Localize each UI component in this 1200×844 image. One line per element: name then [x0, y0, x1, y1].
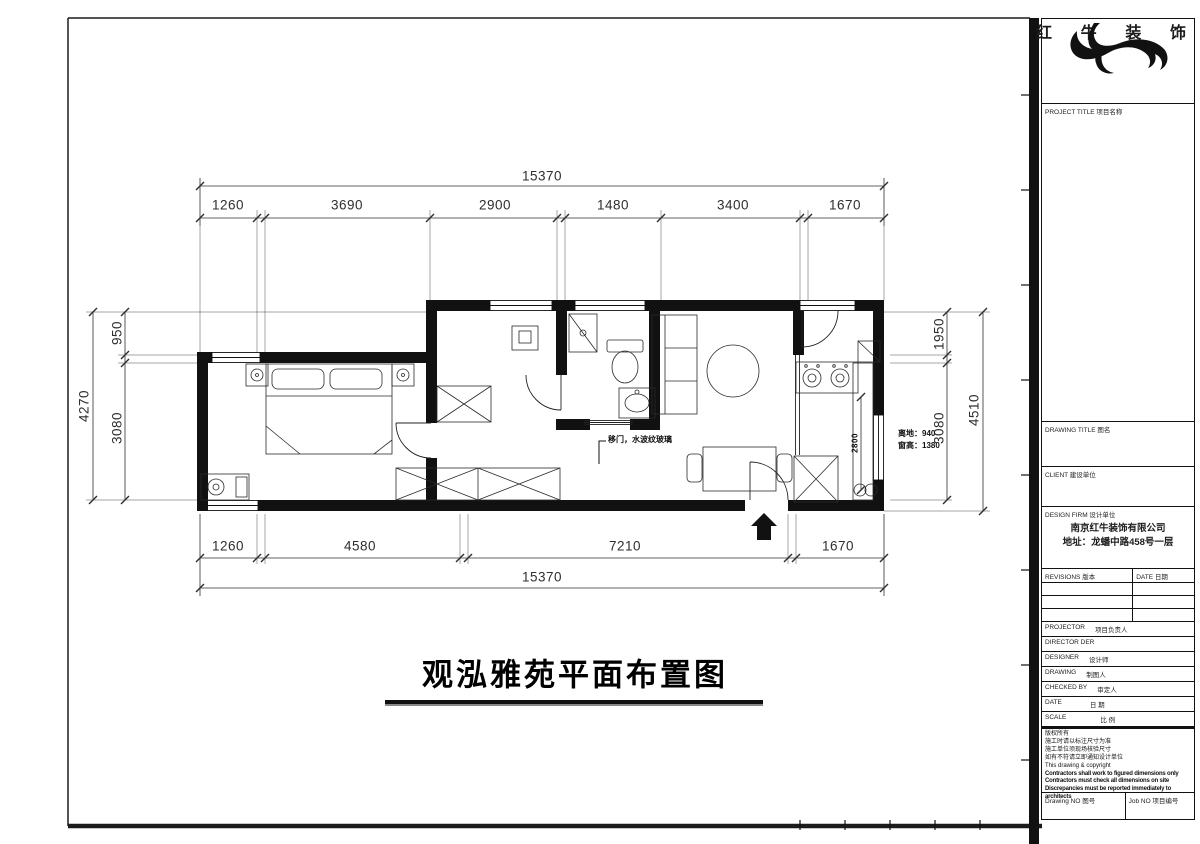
revision-row	[1042, 583, 1194, 596]
dim-bottom-seg-1: 1260	[212, 539, 244, 554]
design-firm-company: 南京红牛装饰有限公司	[1045, 522, 1191, 536]
dimension-lines	[86, 178, 990, 596]
notes-cell: 版权所有 施工时请以标注尺寸为准 施工单位须现场核验尺寸 如有不符请立即通知设计…	[1042, 727, 1194, 793]
washing-machine	[201, 474, 249, 500]
entry-arrow-symbol	[751, 513, 777, 540]
note-line: 如有不符请立即通知设计单位	[1045, 755, 1191, 763]
date-row: DATE 日 期	[1042, 697, 1194, 712]
window-kitchen-right	[874, 415, 884, 480]
bathroom-door	[526, 375, 561, 410]
window-closet-top	[490, 301, 552, 311]
date-label-en: DATE	[1045, 699, 1062, 706]
dim-right-top: 1950	[932, 318, 947, 350]
drawing-title-label: DRAWING TITLE 图名	[1045, 427, 1110, 434]
dim-top-seg-2: 3690	[331, 198, 363, 213]
revisions-header: REVISIONS 版本 DATE 日期	[1042, 569, 1194, 583]
dim-left-top: 950	[110, 321, 125, 345]
dim-left-total: 4270	[77, 390, 92, 422]
glass-door-note: 移门，水波纹玻璃	[608, 434, 672, 445]
project-title-cell: PROJECT TITLE 项目名称	[1042, 104, 1194, 422]
nightstand-left	[246, 364, 268, 386]
shower	[569, 314, 597, 352]
project-title-label: PROJECT TITLE 项目名称	[1045, 109, 1122, 116]
bath-sliding-glass-door	[585, 421, 632, 425]
dim-bottom-seg-3: 7210	[609, 539, 641, 554]
dim-top-seg-4: 1480	[597, 198, 629, 213]
entry-door	[750, 462, 788, 500]
drawing-canvas	[0, 0, 1200, 844]
bedroom-door	[396, 423, 431, 458]
drawing-label-en: DRAWING	[1045, 669, 1076, 676]
window-bath-top	[575, 301, 645, 311]
window-kitchen-top	[800, 301, 855, 311]
window-height-note: 离地：940 窗高：1380	[898, 428, 940, 452]
projector-label-en: PROJECTOR	[1045, 624, 1085, 631]
window-height-line1: 离地：940	[898, 428, 940, 440]
floorplan-sheet: { "page": {"background": "#ffffff", "ink…	[0, 0, 1200, 844]
hall-wardrobe	[396, 468, 560, 500]
dim-top-total: 15370	[522, 169, 562, 184]
note-line: Discrepancies must be reported immediate…	[1045, 786, 1191, 803]
balcony-door	[802, 311, 838, 347]
titleblock-divider-bar	[1029, 18, 1039, 844]
revisions-date-label: DATE 日期	[1136, 574, 1168, 581]
design-firm-cell: DESIGN FIRM 设计单位 南京红牛装饰有限公司 地址：龙蟠中路458号一…	[1042, 507, 1194, 569]
stove	[796, 362, 858, 393]
bed	[266, 364, 392, 454]
note-line: 施工时请以标注尺寸为准	[1045, 739, 1191, 747]
title-block: 红 牛 装 饰 PROJECT TITLE 项目名称 DRAWING TITLE…	[1041, 18, 1195, 820]
nightstand-right	[392, 364, 414, 386]
note-line: This drawing & copyright	[1045, 763, 1191, 771]
closet-wardrobe	[437, 386, 491, 422]
window-height-line2: 窗高：1380	[898, 440, 940, 452]
plan-title-underline	[385, 700, 763, 706]
revision-row	[1042, 609, 1194, 622]
dim-top-seg-6: 1670	[829, 198, 861, 213]
projector-row: PROJECTOR 项目负责人	[1042, 622, 1194, 637]
red-bull-logo-icon	[1042, 19, 1192, 81]
design-firm-address: 地址：龙蟠中路458号一层	[1045, 536, 1191, 550]
revision-row	[1042, 596, 1194, 609]
dim-top-seg-1: 1260	[212, 198, 244, 213]
round-table	[707, 345, 759, 397]
closet-stool	[512, 326, 538, 350]
scale-label-en: SCALE	[1045, 714, 1066, 721]
note-line: 施工单位须现场核验尺寸	[1045, 747, 1191, 755]
dim-bottom-seg-2: 4580	[344, 539, 376, 554]
walls	[197, 300, 884, 511]
scale-row: SCALE 比 例	[1042, 712, 1194, 727]
checked-by-label-en: CHECKED BY	[1045, 684, 1087, 691]
designer-label-en: DESIGNER	[1045, 654, 1079, 661]
scale-label-cn: 比 例	[1100, 714, 1115, 724]
top-ticks	[196, 182, 888, 222]
dining-table	[687, 447, 792, 491]
dim-kitchen-counter: 2800	[851, 433, 860, 453]
dim-left-bottom: 3080	[110, 412, 125, 444]
client-cell: CLIENT 建设单位	[1042, 467, 1194, 507]
dim-bottom-total: 15370	[522, 570, 562, 585]
note-line: 版权所有	[1045, 731, 1191, 739]
revisions-label: REVISIONS 版本	[1045, 574, 1095, 581]
dim-bottom-seg-4: 1670	[822, 539, 854, 554]
toilet	[607, 340, 643, 383]
window-bedroom-top	[212, 353, 260, 363]
drawing-title-cell: DRAWING TITLE 图名	[1042, 422, 1194, 467]
designer-label-cn: 设计师	[1089, 654, 1109, 664]
dim-top-seg-3: 2900	[479, 198, 511, 213]
drawing-label-cn: 制图人	[1086, 669, 1106, 679]
drawing-row: DRAWING 制图人	[1042, 667, 1194, 682]
dim-top-seg-5: 3400	[717, 198, 749, 213]
checked-by-label-cn: 审定人	[1097, 684, 1117, 694]
design-firm-label: DESIGN FIRM 设计单位	[1045, 512, 1115, 519]
brand-cell: 红 牛 装 饰	[1042, 19, 1194, 104]
sheet-frame	[68, 18, 1042, 844]
director-label-en: DIRECTOR DER	[1045, 639, 1094, 646]
projector-label-cn: 项目负责人	[1095, 624, 1128, 634]
glass-note-leader	[599, 441, 606, 464]
window-bedroom-bottom	[205, 501, 258, 511]
plan-title: 观泓雅苑平面布置图	[422, 650, 728, 695]
checked-by-row: CHECKED BY 审定人	[1042, 682, 1194, 697]
date-label-cn: 日 期	[1090, 699, 1105, 709]
client-label: CLIENT 建设单位	[1045, 472, 1096, 479]
designer-row: DESIGNER 设计师	[1042, 652, 1194, 667]
dim-right-total: 4510	[967, 394, 982, 426]
director-row: DIRECTOR DER	[1042, 637, 1194, 652]
fridge	[794, 456, 838, 502]
